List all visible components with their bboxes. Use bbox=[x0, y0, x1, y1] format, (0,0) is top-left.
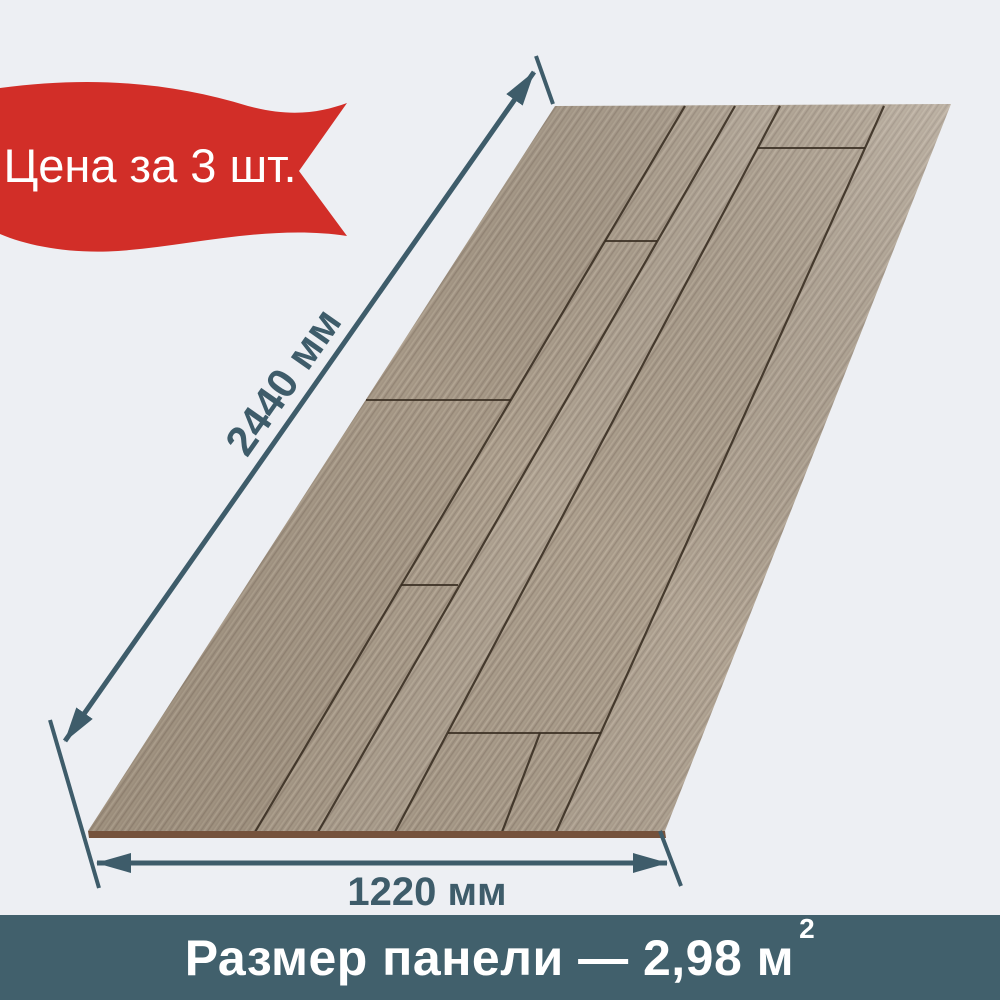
price-badge: Цена за 3 шт. bbox=[0, 82, 347, 252]
shared-extension-tick-left bbox=[50, 720, 99, 888]
width-dimension-label: 1220 мм bbox=[347, 870, 506, 914]
price-badge-label: Цена за 3 шт. bbox=[3, 139, 296, 192]
panel-size-bar: Размер панели — 2,98 м2 bbox=[0, 915, 1000, 1000]
product-infographic: 2440 мм 1220 мм Цена за 3 шт. Размер пан… bbox=[0, 0, 1000, 1000]
panel-size-value: Размер панели — 2,98 м bbox=[185, 929, 794, 987]
length-dimension-label: 2440 мм bbox=[216, 300, 350, 464]
panel-size-text: Размер панели — 2,98 м2 bbox=[185, 929, 816, 987]
length-extension-tick-top bbox=[536, 56, 553, 104]
panel-size-superscript: 2 bbox=[799, 915, 815, 943]
width-extension-tick-right bbox=[660, 831, 681, 886]
panel-edge bbox=[88, 831, 666, 838]
panel-scene: 2440 мм 1220 мм Цена за 3 шт. bbox=[0, 0, 1000, 1000]
